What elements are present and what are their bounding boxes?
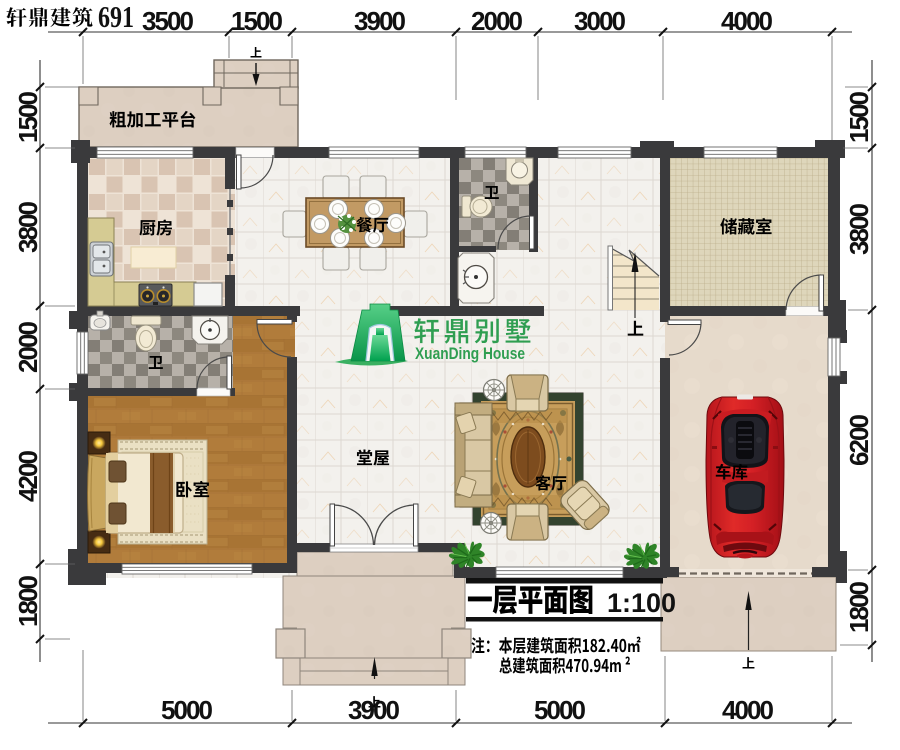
svg-text:4200: 4200 <box>13 450 43 502</box>
svg-text:4000: 4000 <box>721 6 773 36</box>
svg-text:1800: 1800 <box>13 575 43 627</box>
svg-text:3800: 3800 <box>844 203 874 255</box>
svg-text:4000: 4000 <box>722 695 774 725</box>
svg-text:2000: 2000 <box>13 321 43 373</box>
svg-text:3900: 3900 <box>354 6 406 36</box>
svg-text:3900: 3900 <box>348 695 400 725</box>
svg-text:3500: 3500 <box>142 6 194 36</box>
svg-text:1500: 1500 <box>231 6 283 36</box>
svg-text:3800: 3800 <box>13 201 43 253</box>
svg-text:XuanDing House: XuanDing House <box>415 345 525 363</box>
svg-text:5000: 5000 <box>534 695 586 725</box>
svg-text:5000: 5000 <box>161 695 213 725</box>
svg-text:2000: 2000 <box>471 6 523 36</box>
svg-text:1500: 1500 <box>844 91 874 143</box>
svg-text:1:100: 1:100 <box>607 588 676 618</box>
svg-text:6200: 6200 <box>844 414 874 466</box>
svg-text:1500: 1500 <box>13 91 43 143</box>
svg-text:3000: 3000 <box>574 6 626 36</box>
svg-text:691: 691 <box>98 0 134 34</box>
svg-text:1800: 1800 <box>844 581 874 633</box>
